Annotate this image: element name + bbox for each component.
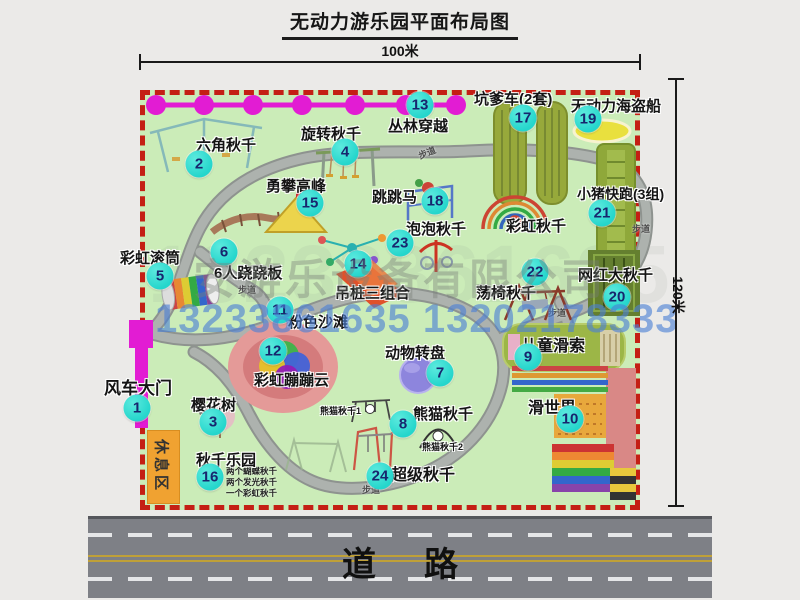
- attraction-badge-8: 8: [390, 411, 417, 438]
- attraction-badge-19: 19: [575, 106, 602, 133]
- width-dimension-label: 100米: [368, 41, 432, 61]
- right-dimension-tick-bottom: [668, 505, 684, 507]
- attraction-label-8: 熊猫秋千: [413, 403, 473, 424]
- top-dimension-line: [140, 61, 640, 63]
- attraction-badge-17: 17: [510, 105, 537, 132]
- attraction-badge-10: 10: [557, 406, 584, 433]
- top-dimension-tick-right: [639, 54, 641, 70]
- attraction-label-21: 小猪快跑(3组): [577, 184, 664, 204]
- attraction-label-5: 彩虹滚筒: [120, 247, 180, 268]
- height-dimension-label: 120米: [668, 265, 688, 325]
- attraction-label-18: 跳跳马: [372, 186, 417, 207]
- attraction-badge-18: 18: [422, 188, 449, 215]
- attraction-badge-21: 21: [589, 200, 616, 227]
- attraction-label-17: 坑爹车(2套): [474, 88, 552, 109]
- attraction-badge-7: 7: [427, 360, 454, 387]
- walkway-label-1: 步道: [632, 222, 650, 235]
- top-dimension-tick-left: [139, 54, 141, 70]
- attraction-badge-3: 3: [200, 409, 227, 436]
- attraction-badge-9: 9: [515, 344, 542, 371]
- walkway-label-0: 步道: [416, 143, 438, 162]
- attraction-label-24: 超级秋千: [391, 461, 455, 485]
- road-label: 道路: [88, 537, 712, 586]
- annotation-label: 熊猫秋千1: [320, 404, 361, 417]
- attraction-badge-1: 1: [124, 395, 151, 422]
- road: 道路: [88, 516, 712, 598]
- park-layout-plan: 无动力游乐园平面布局图 100米 120米 13233861635: [0, 0, 800, 600]
- attraction-badge-13: 13: [407, 92, 434, 119]
- attraction-badge-5: 5: [147, 263, 174, 290]
- attraction-badge-15: 15: [297, 190, 324, 217]
- attraction-badge-16: 16: [197, 464, 224, 491]
- annotation-label: 熊猫秋千2: [422, 440, 463, 453]
- attraction-badge-2: 2: [186, 151, 213, 178]
- attraction-badge-4: 4: [332, 139, 359, 166]
- attraction-badge-24: 24: [367, 463, 394, 490]
- attraction-label-23: 泡泡秋千: [406, 218, 466, 239]
- swing-note-line-1: 两个发光秋千: [226, 477, 277, 488]
- annotation-label: 彩虹秋千: [506, 215, 566, 236]
- phone-watermark: 13233861635 13202178333: [155, 297, 679, 342]
- attraction-label-12: 彩虹蹦蹦云: [254, 369, 329, 390]
- page-title: 无动力游乐园平面布局图: [282, 7, 518, 40]
- right-dimension-tick-top: [668, 78, 684, 80]
- swing-note-line-2: 一个彩虹秋千: [226, 488, 277, 499]
